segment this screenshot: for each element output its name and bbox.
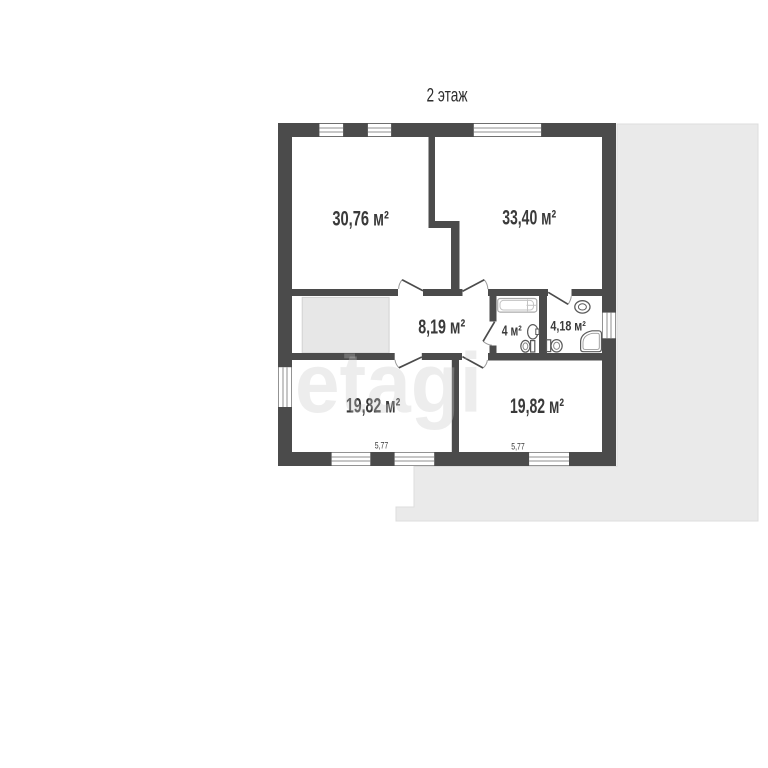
svg-text:30,76 м²: 30,76 м² [332,208,389,231]
svg-text:etagi: etagi [295,336,482,430]
svg-text:19,82 м²: 19,82 м² [510,395,564,418]
svg-text:33,40 м²: 33,40 м² [502,207,556,230]
svg-text:5,77: 5,77 [375,441,389,452]
svg-text:5,77: 5,77 [511,442,525,453]
svg-text:4,18 м²: 4,18 м² [550,318,586,334]
svg-text:4 м²: 4 м² [502,324,522,340]
svg-text:2 этаж: 2 этаж [427,86,468,107]
